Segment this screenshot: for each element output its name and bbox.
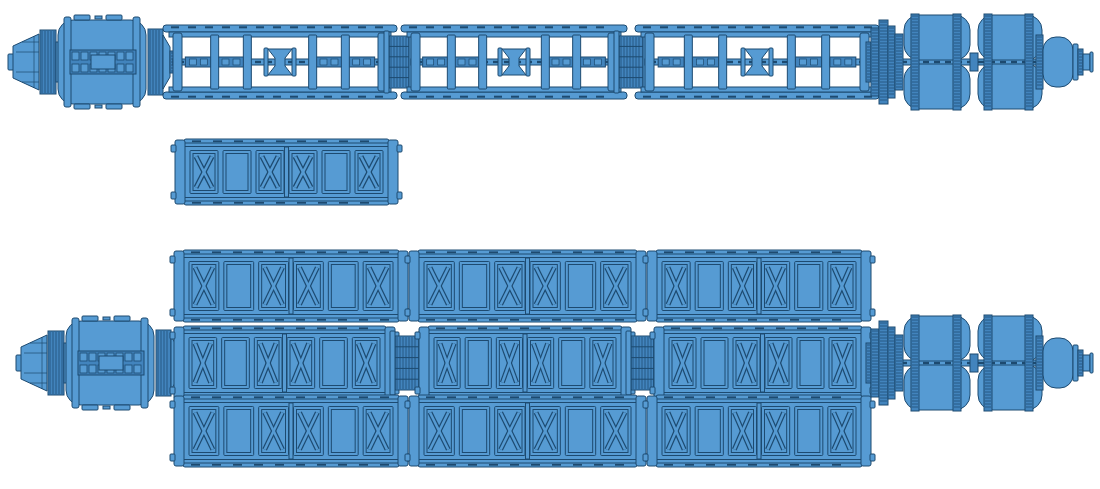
ship-b-panel-truss-top-3 [643,250,875,322]
ship-a-habitat-module [8,15,178,109]
illustration-canvas [0,0,1100,489]
ship-b-panel-truss-mid-1 [170,326,399,400]
ship-b-panel-truss-mid-2 [415,326,635,400]
ship-a-open-truss-segment-3 [635,25,879,99]
assembly-triple-truss-spacecraft [16,250,1093,467]
ship-a-tank-engine-cluster [866,14,1093,110]
ship-b-panel-truss-bottom-2 [405,395,650,467]
ship-b-tank-engine-cluster [866,315,1093,411]
ship-a-truss-coupler-2 [614,31,648,93]
ship-a-open-truss-segment-2 [401,25,627,99]
ship-b-habitat-module [16,316,186,410]
ship-b-panel-truss-bottom-3 [643,395,875,467]
spacecraft-diagram [0,0,1100,489]
ship-b-panel-truss-bottom-1 [170,395,412,467]
spare-spare-panel-truss [171,139,402,205]
ship-a-open-truss-segment-1 [163,25,397,99]
ship-b-panel-truss-mid-3 [650,326,875,400]
ship-b-panel-truss-top-2 [405,250,650,322]
ship-b-panel-truss-top-1 [170,250,412,322]
assembly-spare-truss-segment [171,139,402,205]
ship-a-truss-coupler-1 [384,31,414,93]
assembly-open-truss-spacecraft [8,14,1093,110]
